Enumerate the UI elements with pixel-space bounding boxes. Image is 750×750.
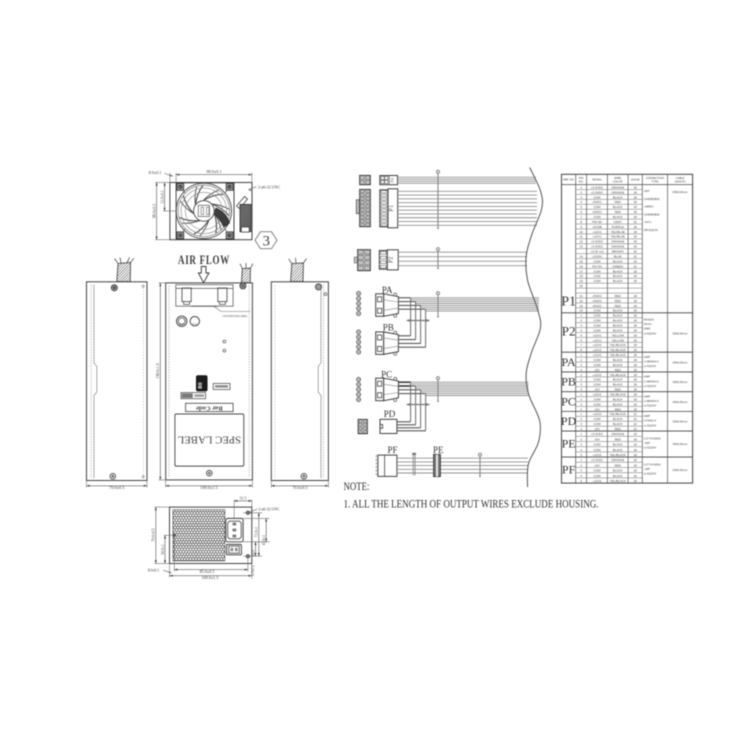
svg-text:+5VDC: +5VDC — [592, 299, 603, 303]
svg-text:+12V1: +12V1 — [593, 338, 602, 342]
svg-text:COM: COM — [594, 422, 602, 426]
svg-text:ORANGE: ORANGE — [611, 458, 624, 462]
svg-text:18: 18 — [634, 469, 638, 473]
svg-text:PE: PE — [433, 445, 444, 455]
svg-text:14.0: 14.0 — [251, 550, 255, 556]
svg-text:18: 18 — [634, 348, 638, 352]
svg-text:ORANGE: ORANGE — [611, 185, 624, 189]
svg-text:BLACK: BLACK — [613, 397, 623, 401]
svg-text:PA: PA — [561, 355, 576, 369]
svg-text:ORANGE: ORANGE — [611, 190, 624, 194]
svg-text:BLACK: BLACK — [613, 259, 623, 263]
svg-text:ORANGE: ORANGE — [611, 240, 624, 244]
svg-text:REF. NO: REF. NO — [563, 178, 574, 182]
svg-text:16: 16 — [579, 264, 583, 268]
svg-text:PC: PC — [561, 394, 576, 408]
svg-text:YEL/BLACK: YEL/BLACK — [610, 373, 626, 377]
svg-text:COM: COM — [594, 319, 602, 323]
svg-text:18: 18 — [634, 448, 638, 452]
svg-text:TUV: TUV — [191, 322, 198, 326]
svg-text:72.0±1: 72.0±1 — [255, 527, 259, 538]
svg-text:18: 18 — [634, 205, 638, 209]
svg-text:198.0±1.0: 198.0±1.0 — [156, 363, 160, 378]
svg-text:18: 18 — [634, 437, 638, 441]
svg-text:18: 18 — [634, 319, 638, 323]
svg-text:21: 21 — [579, 294, 583, 298]
svg-text:LENGTH: LENGTH — [675, 179, 686, 183]
svg-text:RED: RED — [615, 407, 622, 411]
svg-text:10: 10 — [579, 230, 583, 234]
svg-text:GAUGE: GAUGE — [631, 179, 640, 182]
svg-text:18: 18 — [634, 245, 638, 249]
svg-text:RED: RED — [615, 463, 622, 467]
svg-text:+3.3VDC: +3.3VDC — [591, 240, 604, 244]
svg-text:3: 3 — [263, 233, 271, 249]
svg-text:18: 18 — [634, 304, 638, 308]
svg-text:18: 18 — [634, 388, 638, 392]
svg-text:COM: COM — [594, 314, 602, 318]
svg-text:YEL/BLACK: YEL/BLACK — [610, 453, 626, 457]
svg-text:CONNECTION: CONNECTION — [646, 176, 664, 180]
svg-text:18: 18 — [634, 402, 638, 406]
svg-text:39-01-: 39-01- — [644, 322, 652, 326]
svg-text:GRAY: GRAY — [614, 220, 622, 224]
svg-text:RED: RED — [615, 200, 622, 204]
svg-text:30.0±1: 30.0±1 — [161, 544, 165, 555]
svg-text:18: 18 — [634, 240, 638, 244]
svg-text:+5V: +5V — [594, 463, 599, 467]
svg-text:18: 18 — [634, 195, 638, 199]
svg-text:ORANGE: ORANGE — [611, 432, 624, 436]
svg-text:COM: COM — [594, 402, 602, 406]
svg-text:+12V2: +12V2 — [593, 373, 602, 377]
svg-text:-15P: -15P — [644, 467, 650, 471]
svg-text:12: 12 — [579, 240, 583, 244]
svg-text:11: 11 — [580, 235, 583, 239]
svg-text:18: 18 — [634, 397, 638, 401]
svg-text:2-ø6-32 UNC: 2-ø6-32 UNC — [259, 508, 280, 512]
svg-text:COM: COM — [594, 309, 602, 313]
svg-text:18: 18 — [634, 333, 638, 337]
svg-text:BLACK: BLACK — [613, 363, 623, 367]
svg-text:18: 18 — [634, 259, 638, 263]
svg-text:2080: 2080 — [644, 327, 651, 331]
svg-text:22: 22 — [579, 299, 583, 303]
svg-text:8.0±0.1: 8.0±0.1 — [149, 170, 162, 175]
svg-text:AIR FLOW: AIR FLOW — [178, 253, 230, 267]
svg-text:COM: COM — [594, 417, 602, 421]
svg-text:BLACK: BLACK — [613, 323, 623, 327]
svg-text:19: 19 — [579, 279, 583, 283]
svg-text:SPEC LABEL: SPEC LABEL — [178, 434, 241, 446]
svg-text:18: 18 — [634, 274, 638, 278]
svg-text:12.0±0.1: 12.0±0.1 — [160, 190, 164, 204]
svg-text:20: 20 — [579, 284, 583, 288]
svg-text:15: 15 — [579, 259, 583, 263]
svg-text:22: 22 — [634, 250, 638, 254]
svg-text:18: 18 — [634, 453, 638, 457]
svg-text:AMP: AMP — [644, 394, 650, 398]
svg-text:CH5082B02: CH5082B02 — [644, 212, 660, 216]
svg-text:18: 18 — [579, 274, 583, 278]
svg-text:18: 18 — [634, 393, 638, 397]
svg-text:BROWN: BROWN — [612, 250, 624, 254]
svg-text:+12V2: +12V2 — [593, 453, 602, 457]
svg-text:300±15mm: 300±15mm — [673, 420, 688, 424]
svg-text:+5VDC: +5VDC — [592, 294, 603, 298]
svg-text:4.5±0.1: 4.5±0.1 — [251, 565, 255, 576]
svg-text:BLACK: BLACK — [613, 319, 623, 323]
svg-text:18: 18 — [634, 368, 638, 372]
svg-text:18: 18 — [634, 314, 638, 318]
svg-text:COM: COM — [594, 474, 602, 478]
svg-text:450±15mm: 450±15mm — [673, 400, 688, 404]
svg-text:+12V1: +12V1 — [593, 333, 602, 337]
svg-text:RED: RED — [615, 304, 622, 308]
svg-text:18: 18 — [634, 407, 638, 411]
svg-text:18: 18 — [634, 190, 638, 194]
svg-text:OR EQUIV: OR EQUIV — [644, 228, 658, 232]
svg-text:70.0±0.5: 70.0±0.5 — [152, 528, 156, 542]
svg-text:P2: P2 — [562, 324, 576, 339]
svg-text:COM: COM — [594, 448, 602, 452]
svg-text:BLACK: BLACK — [613, 378, 623, 382]
svg-text:CJT FUSING: CJT FUSING — [644, 437, 662, 441]
svg-text:BLACK: BLACK — [613, 402, 623, 406]
svg-text:100.0±1.5: 100.0±1.5 — [202, 575, 219, 580]
svg-text:AMP: AMP — [644, 414, 650, 418]
svg-text:BLUE: BLUE — [614, 254, 622, 258]
svg-text:SIGNAL: SIGNAL — [592, 178, 602, 182]
svg-text:COM: COM — [594, 378, 602, 382]
svg-text:18: 18 — [634, 378, 638, 382]
svg-text:2-ø6-32 UNC: 2-ø6-32 UNC — [258, 184, 280, 189]
svg-text:RED: RED — [615, 427, 622, 431]
svg-text:+5V: +5V — [594, 437, 599, 441]
svg-text:or EQUIV: or EQUIV — [644, 404, 656, 408]
svg-text:PD: PD — [384, 409, 396, 419]
svg-text:NOTE:: NOTE: — [344, 481, 370, 493]
svg-text:350±15mm: 350±15mm — [673, 380, 688, 384]
svg-text:171822-4: 171822-4 — [644, 419, 657, 423]
svg-text:COM: COM — [594, 358, 602, 362]
svg-text:+3.3VDC: +3.3VDC — [591, 190, 604, 194]
svg-text:AMP: AMP — [644, 355, 650, 359]
svg-text:18: 18 — [634, 479, 638, 483]
svg-text:BLACK: BLACK — [613, 443, 623, 447]
svg-text:+5VDC: +5VDC — [592, 210, 603, 214]
svg-text:8.0±0.1: 8.0±0.1 — [148, 569, 160, 573]
svg-text:YEL/BLUE: YEL/BLUE — [611, 230, 625, 234]
svg-text:+12V2: +12V2 — [593, 348, 602, 352]
svg-text:43.0±1: 43.0±1 — [262, 535, 266, 546]
svg-text:18: 18 — [634, 210, 638, 214]
svg-text:BLACK: BLACK — [613, 383, 623, 387]
svg-text:PB: PB — [383, 323, 394, 333]
svg-text:ORANGE: ORANGE — [611, 245, 624, 249]
svg-text:70.0±0.5: 70.0±0.5 — [292, 485, 307, 490]
svg-text:+5VDC: +5VDC — [592, 200, 603, 204]
svg-text:14: 14 — [579, 254, 583, 258]
svg-text:18: 18 — [634, 353, 638, 357]
svg-text:80: 80 — [197, 382, 204, 389]
svg-text:COLOR: COLOR — [613, 179, 623, 183]
svg-text:1-480424-0: 1-480424-0 — [644, 360, 659, 364]
svg-text:+5VSB: +5VSB — [592, 225, 601, 229]
svg-text:or EQUIV: or EQUIV — [644, 331, 656, 335]
svg-text:COM: COM — [594, 383, 602, 387]
svg-text:COM: COM — [594, 205, 602, 209]
svg-text:+3.3V rmt: +3.3V rmt — [590, 250, 603, 254]
svg-text:PF: PF — [387, 445, 397, 455]
svg-text:PW-OK: PW-OK — [592, 220, 602, 224]
svg-text:18: 18 — [634, 294, 638, 298]
svg-text:BLACK: BLACK — [613, 358, 623, 362]
svg-text:1. ALL THE LENGTH OF OUTPUT WI: 1. ALL THE LENGTH OF OUTPUT WIRES EXCLUD… — [344, 499, 599, 511]
svg-text:98.0±0.5: 98.0±0.5 — [151, 204, 156, 218]
svg-text:1-480424-0: 1-480424-0 — [644, 399, 659, 403]
svg-text:BLACK: BLACK — [613, 269, 623, 273]
svg-text:COM: COM — [594, 269, 602, 273]
svg-text:18: 18 — [634, 432, 638, 436]
svg-text:YEL/BLACK: YEL/BLACK — [610, 479, 626, 483]
svg-text:18: 18 — [634, 225, 638, 229]
svg-text:250±15mm: 250±15mm — [673, 361, 688, 365]
svg-text:YEL/BLACK: YEL/BLACK — [610, 343, 626, 347]
svg-text:COM: COM — [594, 397, 602, 401]
svg-text:PD: PD — [561, 414, 577, 428]
svg-text:CH5082B02: CH5082B02 — [644, 197, 660, 201]
svg-text:GREEN: GREEN — [612, 264, 623, 268]
svg-text:RED: RED — [615, 388, 622, 392]
svg-text:70.0±0.5: 70.0±0.5 — [109, 485, 124, 490]
svg-text:P1: P1 — [388, 205, 395, 212]
svg-text:18: 18 — [634, 343, 638, 347]
svg-text:18: 18 — [634, 328, 638, 332]
svg-text:18: 18 — [634, 200, 638, 204]
svg-text:NO.: NO. — [579, 179, 584, 183]
svg-text:YELLOW: YELLOW — [611, 333, 624, 337]
svg-text:18: 18 — [634, 230, 638, 234]
svg-text:22: 22 — [634, 422, 638, 426]
svg-text:BLACK: BLACK — [613, 309, 623, 313]
svg-text:+12V1: +12V1 — [593, 230, 602, 234]
svg-text:PE: PE — [562, 437, 576, 451]
svg-text:24: 24 — [579, 309, 583, 313]
svg-text:98.0±0.1: 98.0±0.1 — [206, 169, 221, 174]
svg-text:BLACK: BLACK — [613, 328, 623, 332]
svg-text:PB: PB — [561, 375, 576, 389]
svg-text:BLACK: BLACK — [613, 195, 623, 199]
svg-text:YELLOW: YELLOW — [611, 338, 624, 342]
svg-text:18: 18 — [634, 463, 638, 467]
svg-text:18: 18 — [634, 358, 638, 362]
svg-text:Bar Code: Bar Code — [196, 405, 223, 412]
svg-text:18: 18 — [634, 474, 638, 478]
svg-text:RED: RED — [615, 210, 622, 214]
svg-text:18: 18 — [634, 383, 638, 387]
svg-text:18: 18 — [634, 299, 638, 303]
svg-text:PF: PF — [562, 463, 576, 477]
svg-text:-12VDC: -12VDC — [592, 254, 604, 258]
svg-text:22: 22 — [634, 427, 638, 431]
svg-text:or EQUIV: or EQUIV — [644, 384, 656, 388]
svg-text:cUL: cUL — [179, 322, 185, 326]
svg-text:-AA7+: -AA7+ — [644, 220, 652, 224]
svg-text:or EQUIV: or EQUIV — [644, 472, 656, 476]
svg-text:BLACK: BLACK — [613, 474, 623, 478]
svg-text:-A8NP+: -A8NP+ — [644, 205, 655, 209]
svg-text:18: 18 — [634, 269, 638, 273]
svg-text:BLACK: BLACK — [613, 215, 623, 219]
svg-text:COM: COM — [594, 259, 602, 263]
svg-text:THP75P450FAN3: THP75P450FAN3 — [222, 314, 247, 318]
svg-text:RED: RED — [615, 299, 622, 303]
svg-text:YEL/BLUE: YEL/BLUE — [611, 235, 625, 239]
svg-text:250±15mm: 250±15mm — [673, 190, 688, 194]
svg-text:P2: P2 — [389, 257, 395, 263]
svg-text:BLACK: BLACK — [613, 279, 623, 283]
svg-text:WIRE: WIRE — [614, 176, 621, 180]
svg-text:AMP: AMP — [644, 375, 650, 379]
svg-text:18: 18 — [634, 373, 638, 377]
svg-text:+12V1: +12V1 — [593, 235, 602, 239]
svg-text:PS-ON: PS-ON — [592, 264, 602, 268]
svg-text:or EQUIV: or EQUIV — [644, 364, 656, 368]
svg-text:+12V2: +12V2 — [593, 393, 602, 397]
svg-text:BLACK: BLACK — [613, 469, 623, 473]
svg-text:or EQUIV: or EQUIV — [644, 423, 656, 427]
svg-text:RED: RED — [615, 368, 622, 372]
svg-text:+12V2: +12V2 — [593, 343, 602, 347]
svg-text:18: 18 — [634, 235, 638, 239]
svg-text:+5V: +5V — [594, 407, 599, 411]
svg-text:RED: RED — [615, 294, 622, 298]
svg-text:or EQUIV: or EQUIV — [644, 446, 656, 450]
svg-text:18: 18 — [634, 215, 638, 219]
svg-text:350±15mm: 350±15mm — [673, 332, 688, 336]
svg-text:+3.3VDC: +3.3VDC — [591, 185, 604, 189]
svg-text:YEL/BLACK: YEL/BLACK — [610, 412, 626, 416]
svg-text:YEL/BLACK: YEL/BLACK — [610, 393, 626, 397]
svg-text:18: 18 — [634, 323, 638, 327]
svg-text:BLACK: BLACK — [613, 422, 623, 426]
svg-text:COM: COM — [594, 323, 602, 327]
svg-text:22: 22 — [634, 254, 638, 258]
svg-text:100.0±1.5: 100.0±1.5 — [200, 485, 217, 490]
svg-text:COM: COM — [594, 363, 602, 367]
svg-text:COM: COM — [594, 469, 602, 473]
svg-text:18: 18 — [634, 458, 638, 462]
svg-text:+5VDC: +5VDC — [592, 304, 603, 308]
svg-text:BLACK: BLACK — [613, 274, 623, 278]
svg-text:MOLEX: MOLEX — [644, 318, 654, 322]
svg-text:23: 23 — [579, 304, 583, 308]
svg-text:1-480424-0: 1-480424-0 — [644, 379, 659, 383]
svg-text:PURPLE: PURPLE — [612, 225, 624, 229]
svg-text:PIN: PIN — [579, 176, 584, 180]
svg-text:YEL/BLACK: YEL/BLACK — [610, 348, 626, 352]
svg-text:COM: COM — [594, 443, 602, 447]
svg-text:200±15mm: 200±15mm — [673, 468, 688, 472]
svg-text:JWT: JWT — [644, 189, 650, 193]
svg-text:17: 17 — [579, 269, 583, 273]
svg-text:COM: COM — [594, 279, 602, 283]
svg-text:COM: COM — [594, 215, 602, 219]
svg-text:85.0±0.5: 85.0±0.5 — [200, 569, 215, 574]
svg-text:31.5: 31.5 — [240, 496, 247, 501]
svg-text:P1: P1 — [561, 295, 576, 310]
svg-text:COM: COM — [594, 274, 602, 278]
svg-text:18: 18 — [634, 363, 638, 367]
svg-text:+12V2: +12V2 — [593, 412, 602, 416]
svg-text:22: 22 — [634, 220, 638, 224]
svg-text:13: 13 — [579, 245, 583, 249]
svg-text:BLACK: BLACK — [613, 314, 623, 318]
svg-text:COM: COM — [594, 328, 602, 332]
svg-text:18: 18 — [634, 309, 638, 313]
svg-text:CJT FUSING: CJT FUSING — [644, 463, 662, 467]
svg-text:350±15mm: 350±15mm — [673, 442, 688, 446]
svg-text:+3.3VDC: +3.3VDC — [591, 458, 604, 462]
svg-text:18: 18 — [634, 185, 638, 189]
svg-text:RED: RED — [615, 437, 622, 441]
svg-text:+3.3VDC: +3.3VDC — [591, 432, 604, 436]
svg-text:BLACK: BLACK — [613, 417, 623, 421]
svg-text:-15P: -15P — [644, 441, 650, 445]
svg-text:+3.3VDC: +3.3VDC — [591, 245, 604, 249]
svg-text:18: 18 — [634, 443, 638, 447]
svg-text:BLACK: BLACK — [613, 205, 623, 209]
svg-text:+12V2: +12V2 — [593, 479, 602, 483]
svg-text:CABLE: CABLE — [676, 176, 685, 180]
svg-text:+5V: +5V — [594, 388, 599, 392]
svg-text:YEL/BLACK: YEL/BLACK — [610, 353, 626, 357]
svg-text:18: 18 — [634, 338, 638, 342]
svg-text:+12V2: +12V2 — [593, 353, 602, 357]
svg-text:COM: COM — [594, 195, 602, 199]
svg-text:TYPE: TYPE — [651, 179, 658, 183]
svg-text:22: 22 — [634, 417, 638, 421]
svg-text:22: 22 — [634, 412, 638, 416]
svg-text:18: 18 — [634, 279, 638, 283]
svg-text:22: 22 — [634, 264, 638, 268]
svg-text:BLACK: BLACK — [613, 448, 623, 452]
svg-text:+5V: +5V — [594, 427, 599, 431]
svg-text:+5V: +5V — [594, 368, 599, 372]
